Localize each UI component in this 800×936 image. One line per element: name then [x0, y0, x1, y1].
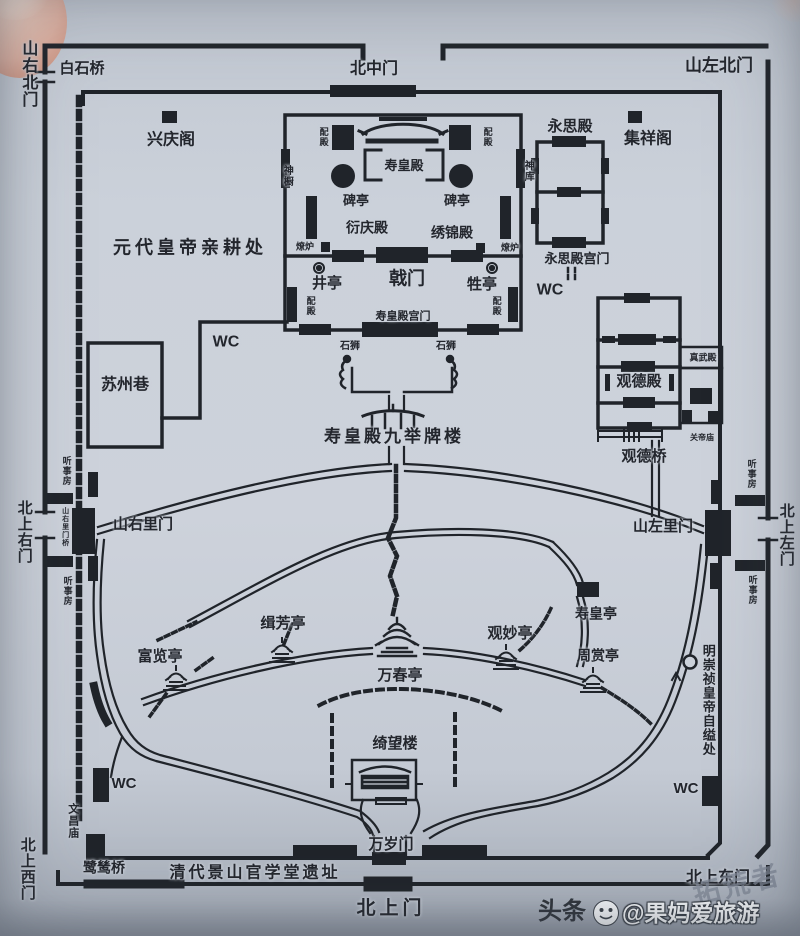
label-shishi-right: 石狮: [436, 342, 456, 352]
shanyouli-gate-block: [72, 508, 95, 554]
label-qiwang-tower: 绮望楼: [372, 736, 417, 752]
chongzhen-site-marker: [684, 656, 697, 669]
shouhuang-complex: [285, 115, 521, 330]
pailou-icon: [363, 396, 423, 428]
label-guanmiao-pavilion: 观妙亭: [487, 626, 532, 642]
label-tingshifang-right-bottom: 听事房: [747, 575, 756, 605]
label-yongsi-hall: 永思殿: [547, 119, 592, 135]
scanned-park-map-photo: 山右北门白石桥北中门山左北门兴庆阁集祥阁元代皇帝亲耕处永思殿配殿配殿配殿配殿神橱…: [0, 0, 800, 936]
label-wenchang-temple: 文昌庙: [66, 803, 77, 839]
shanzuoli-gate-block: [705, 510, 731, 556]
label-peidian-br: 配殿: [491, 296, 500, 316]
label-shanzuoli-gate: 山左里门: [633, 519, 693, 535]
jixiang-pavilion-block: [628, 111, 642, 123]
qiwang-tower-icon: [346, 760, 422, 804]
zhoushang-pavilion-icon: [581, 668, 605, 692]
label-guandi-temple: 关帝庙: [690, 434, 714, 442]
xingqing-pavilion-block: [162, 111, 177, 123]
label-zhenwu-hall: 真武殿: [689, 353, 716, 362]
label-guande-hall: 观德殿: [616, 374, 661, 390]
label-suzhou-lane: 苏州巷: [101, 378, 149, 395]
label-wc-southeast: WC: [674, 781, 699, 797]
label-wc-southwest: WC: [112, 776, 137, 792]
fulan-pavilion-icon: [164, 666, 188, 690]
label-beishang-gate: 北上门: [356, 899, 425, 919]
guanmiao-pavilion-icon: [494, 645, 518, 669]
label-baishi-bridge: 白石桥: [59, 61, 104, 77]
label-beiting-left: 碑亭: [343, 194, 369, 208]
label-beiting-right: 碑亭: [444, 194, 470, 208]
stone-lions: [340, 356, 457, 392]
label-qingdai-school-site: 清代景山官学堂遗址: [169, 866, 340, 883]
label-beishang-right-gate: 北上右门: [16, 500, 32, 564]
stone-lion-left-icon: [340, 360, 347, 388]
label-jixiang-pavilion: 集祥阁: [624, 132, 672, 149]
stele-pavilion-left-icon: [331, 164, 355, 188]
label-wansui-gate: 万岁门: [368, 837, 413, 853]
label-xingqing-pavilion: 兴庆阁: [147, 133, 195, 150]
label-fulan-pavilion: 富览亭: [137, 649, 182, 665]
label-xiujin-hall: 绣锦殿: [431, 226, 473, 241]
label-yanqing-hall: 衍庆殿: [346, 221, 388, 236]
label-shouhuang-pavilion: 寿皇亭: [575, 607, 617, 622]
guande-bridge-icon: [598, 428, 662, 441]
label-beizhong-gate: 北中门: [350, 62, 398, 79]
guande-compound: [598, 298, 722, 428]
label-beishang-west-gate: 北上西门: [19, 837, 35, 901]
label-peidian-bl: 配殿: [305, 296, 314, 316]
jifang-pavilion-icon: [270, 638, 294, 662]
label-guande-bridge: 观德桥: [621, 449, 666, 465]
label-beishang-east-gate: 北上东门: [686, 871, 750, 888]
label-sheng-pavilion: 牲亭: [467, 277, 497, 293]
wc-southeast-block: [702, 776, 718, 806]
wenchang-temple-block: [86, 834, 105, 858]
label-peidian-tl: 配殿: [318, 127, 327, 147]
wanchun-pavilion-icon: [376, 618, 418, 656]
label-shenku: 神库: [522, 160, 532, 182]
label-shouhuang-gongmen: 寿皇殿宫门: [376, 311, 431, 322]
label-pailou: 寿皇殿九举牌楼: [324, 428, 464, 446]
label-beishang-left-gate: 北上左门: [778, 503, 794, 567]
label-shanzuo-north-gate: 山左北门: [685, 57, 753, 75]
label-yongsi-gongmen: 永思殿宫门: [544, 252, 609, 266]
label-chongzhen-suicide-site: 明崇祯皇帝自缢处: [701, 644, 715, 756]
label-shanyou-north-gate: 山右北门: [19, 40, 36, 108]
label-yuandai-qingeng: 元代皇帝亲耕处: [113, 239, 267, 258]
beizhong-gate-block: [330, 85, 416, 97]
label-jifang-pavilion: 缉芳亭: [260, 616, 305, 632]
shouhuang-complex-blocks: [281, 125, 525, 337]
label-zhoushang-pavilion: 周赏亭: [577, 649, 619, 664]
label-tingshifang-right-top: 听事房: [746, 459, 755, 489]
shouhuang-pavilion-block: [577, 582, 599, 597]
label-peidian-tr: 配殿: [482, 127, 491, 147]
label-liaolu-right: 燎炉: [501, 243, 519, 252]
outer-south-street-wall: [58, 867, 768, 884]
wansui-gate-block: [372, 852, 406, 865]
label-wc-suzhou: WC: [213, 335, 240, 352]
label-wc-yongsi: WC: [537, 283, 564, 300]
label-shenchu: 神橱: [281, 165, 291, 187]
label-liaolu-left: 燎炉: [296, 242, 314, 251]
label-tingshifang-left-bottom: 听事房: [62, 576, 71, 606]
label-shouhuang-hall: 寿皇殿: [384, 159, 423, 173]
wc-southwest-block: [93, 768, 109, 802]
label-shanyouli-bridge: 山右里门桥: [61, 507, 68, 547]
hall-roof: [359, 124, 447, 134]
label-tingshifang-left-top: 听事房: [61, 456, 70, 486]
label-lusi-bridge: 鹭鸶桥: [83, 861, 125, 876]
label-shishi-left: 石狮: [340, 342, 360, 352]
beishang-gate-block: [364, 877, 412, 891]
label-ji-gate: 戟门: [389, 270, 425, 289]
label-jing-pavilion: 井亭: [312, 276, 342, 292]
label-wanchun-pavilion: 万春亭: [377, 668, 422, 684]
stele-pavilion-right-icon: [449, 164, 473, 188]
label-shanyouli-gate: 山右里门: [113, 517, 173, 533]
